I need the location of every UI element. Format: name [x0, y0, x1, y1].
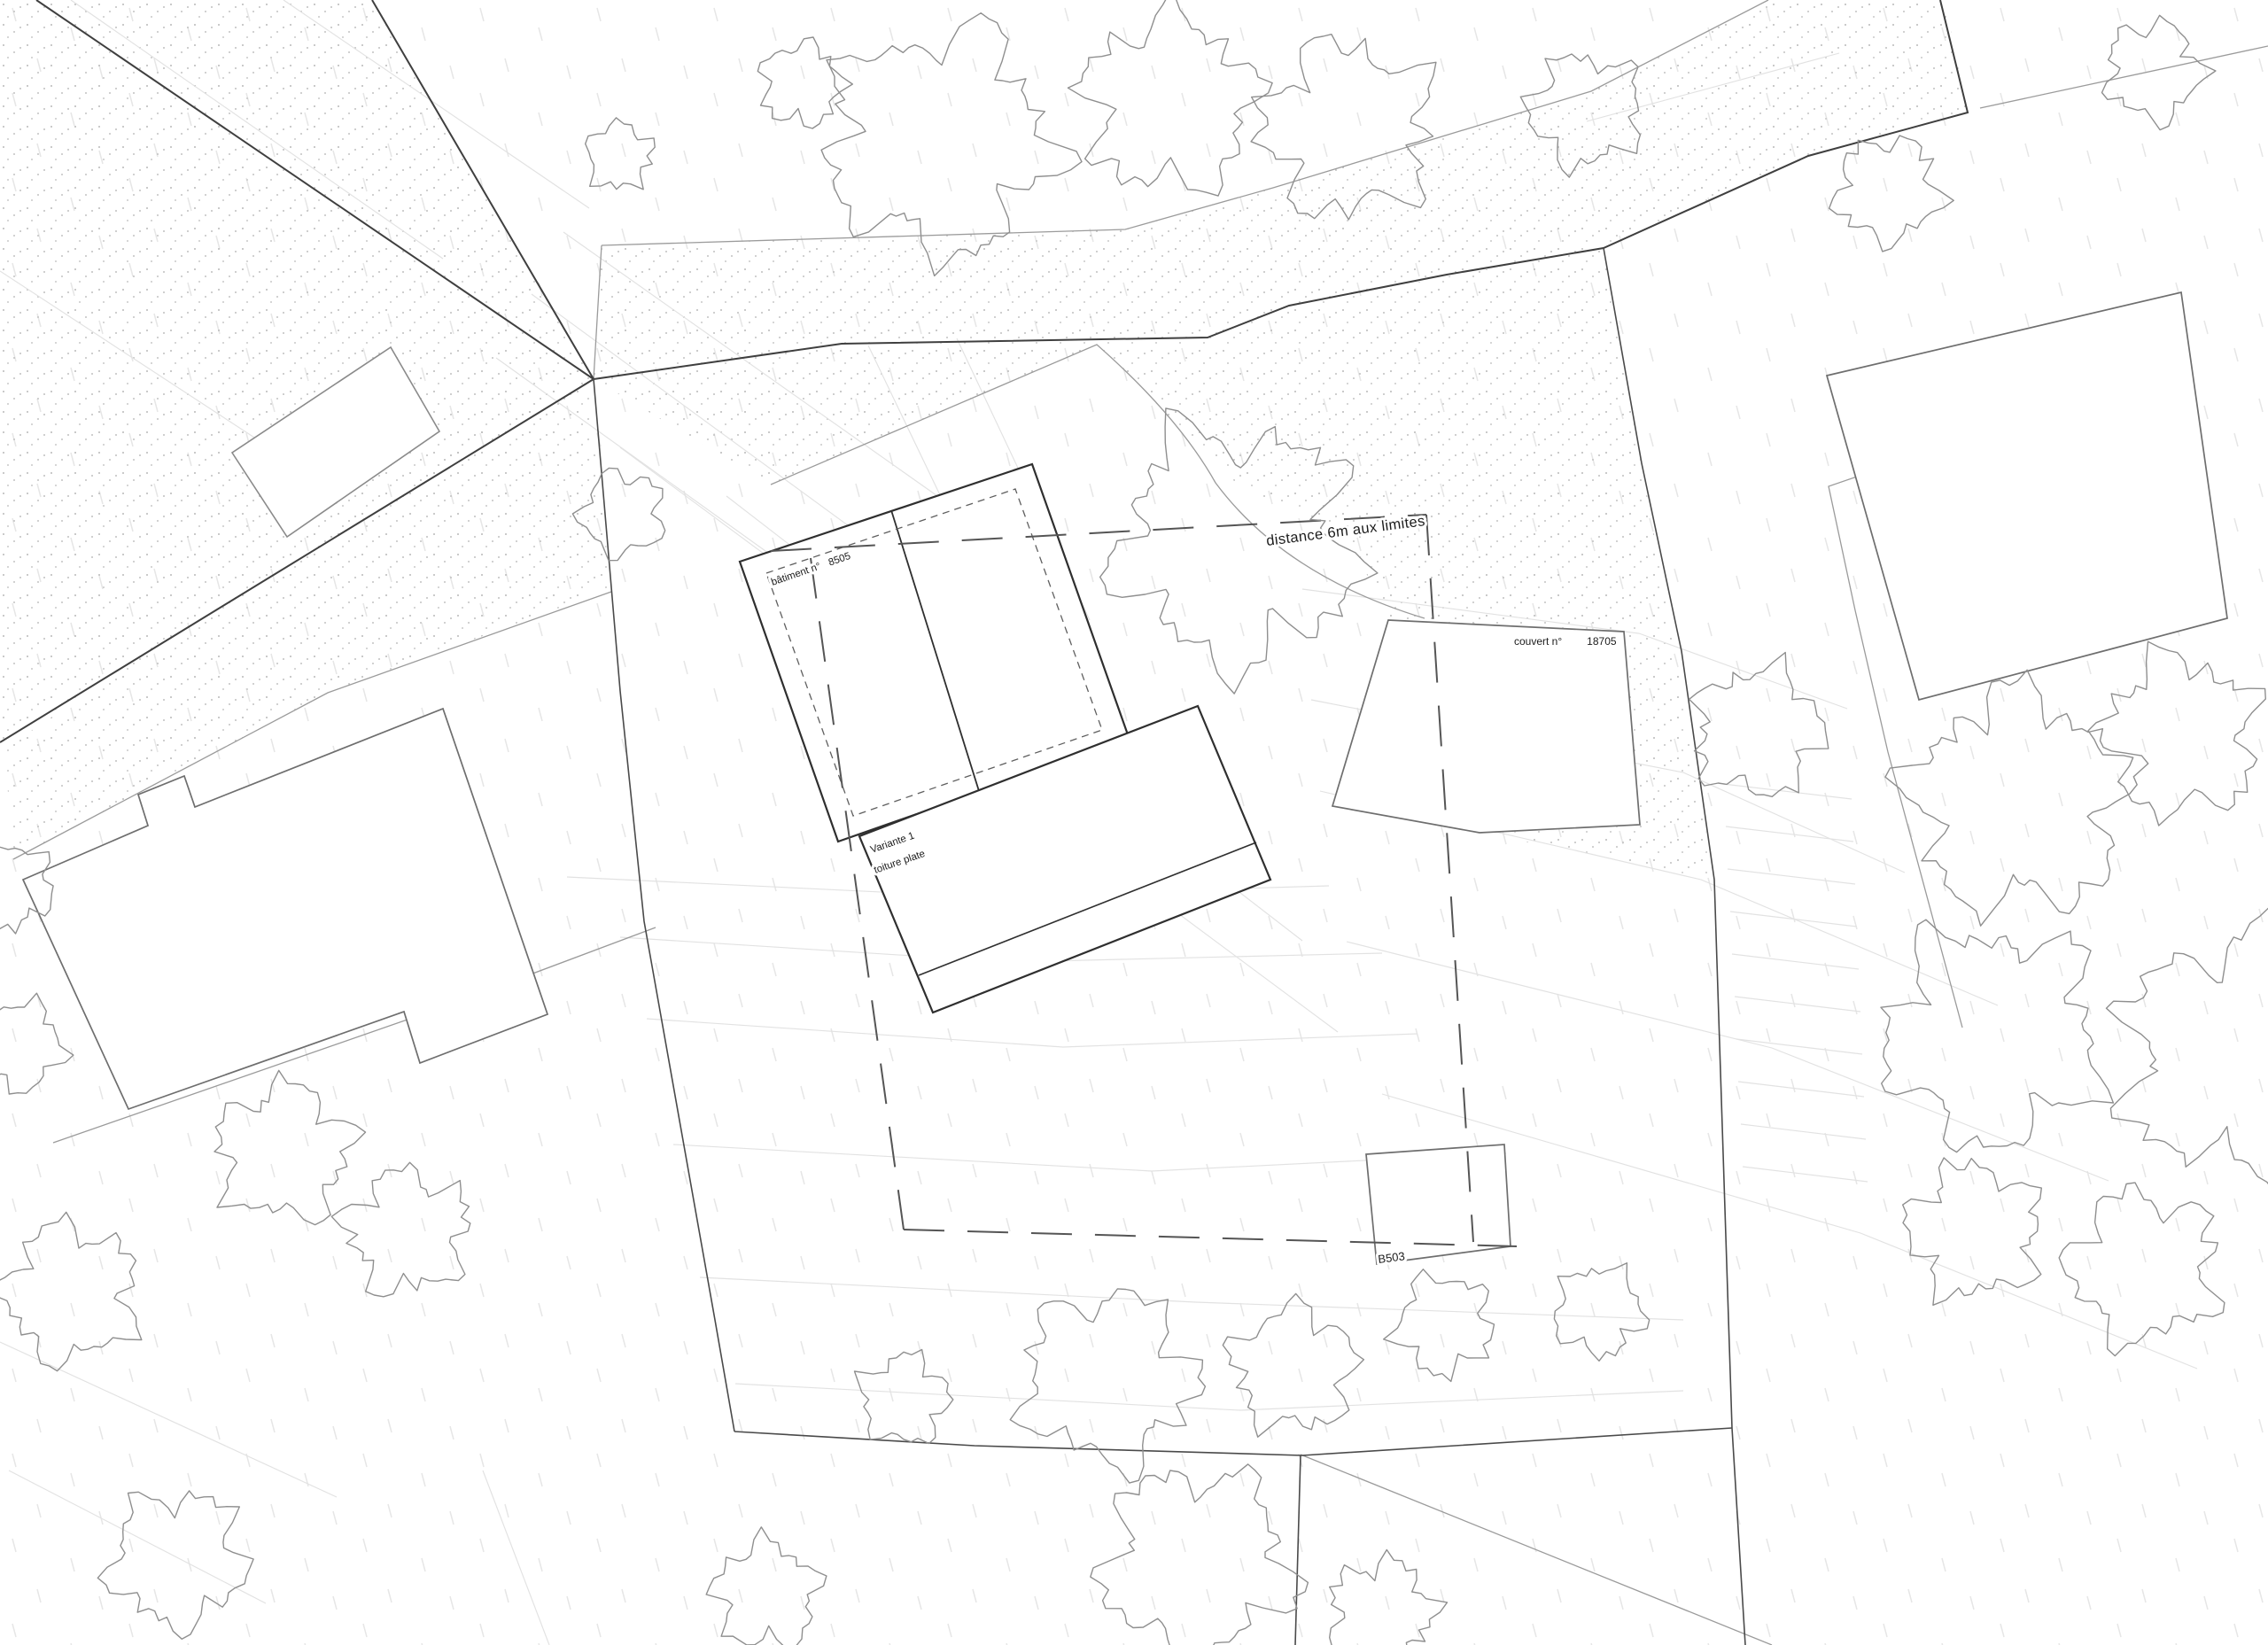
- label-couvert-number: 18705: [1587, 635, 1617, 648]
- site-plan-canvas: distance 6m aux limites bâtiment n°8505 …: [0, 0, 2268, 1645]
- label-couvert-name: couvert n°: [1514, 635, 1562, 648]
- couvert-18705: [1332, 620, 1640, 833]
- couvert-outline: [1332, 620, 1640, 833]
